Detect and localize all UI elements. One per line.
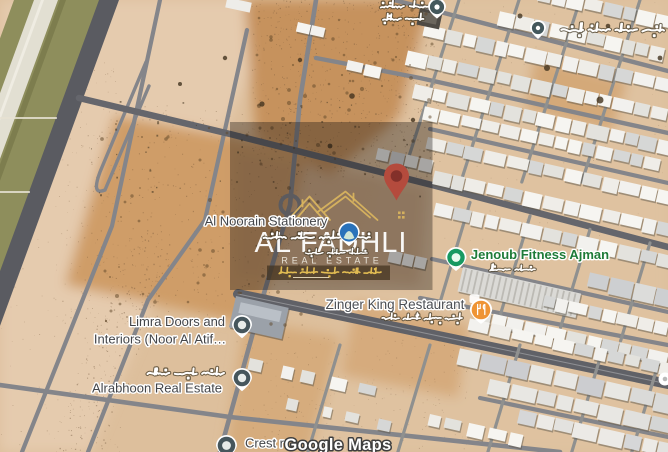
svg-text:Crest r: Crest r [245, 436, 285, 451]
svg-text:Al Noorain Stationery: Al Noorain Stationery [205, 214, 328, 229]
svg-text:Google Maps: Google Maps [285, 436, 392, 452]
svg-text:REAL ESTATE: REAL ESTATE [281, 256, 382, 266]
svg-text:Jenoub Fitness Ajman: Jenoub Fitness Ajman [471, 247, 609, 262]
svg-text:Interiors (Noor Al Atif…: Interiors (Noor Al Atif… [94, 332, 226, 347]
svg-text:Alrabhoon Real Estate: Alrabhoon Real Estate [92, 381, 222, 396]
svg-text:Limra Doors and: Limra Doors and [129, 314, 225, 329]
svg-text:Zinger King Restaurant: Zinger King Restaurant [326, 297, 465, 312]
